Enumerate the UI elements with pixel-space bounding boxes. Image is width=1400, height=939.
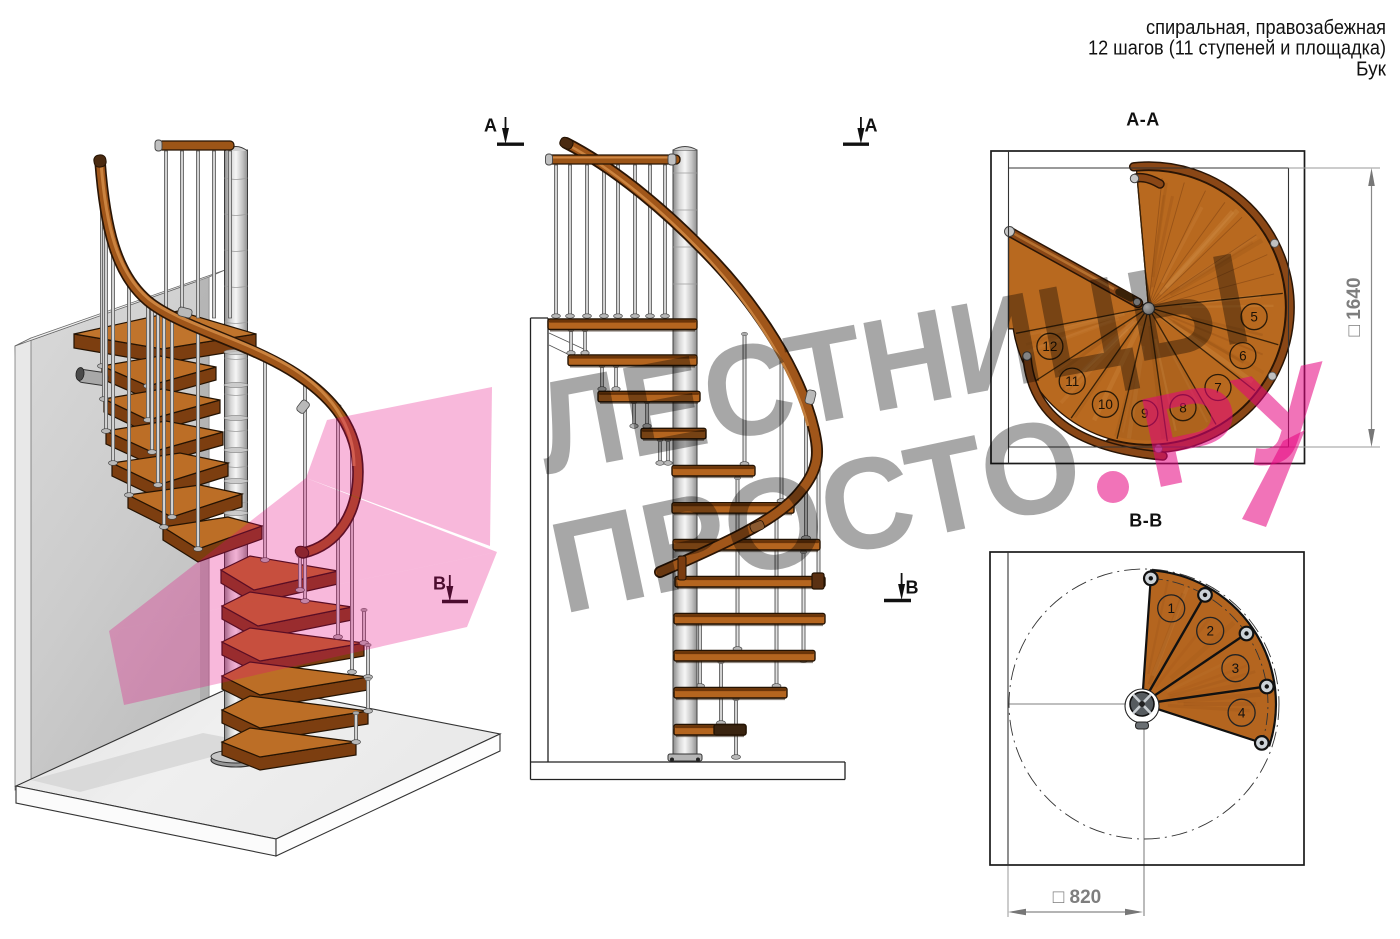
svg-text:А-А: А-А <box>1126 110 1160 130</box>
svg-text:□ 1640: □ 1640 <box>1344 277 1365 336</box>
svg-text:Бук: Бук <box>1356 58 1386 80</box>
svg-text:12 шагов (11 ступеней и площад: 12 шагов (11 ступеней и площадка) <box>1088 38 1386 60</box>
svg-text:□ 820: □ 820 <box>1053 887 1101 908</box>
svg-text:3: 3 <box>1232 661 1240 676</box>
svg-text:А: А <box>484 116 497 136</box>
svg-text:1: 1 <box>1167 601 1175 616</box>
svg-text:4: 4 <box>1238 706 1246 721</box>
svg-text:В: В <box>906 578 919 598</box>
svg-text:А: А <box>865 116 878 136</box>
svg-text:спиральная, правозабежная: спиральная, правозабежная <box>1146 17 1386 39</box>
svg-text:2: 2 <box>1206 624 1214 639</box>
svg-text:10: 10 <box>1098 397 1113 412</box>
